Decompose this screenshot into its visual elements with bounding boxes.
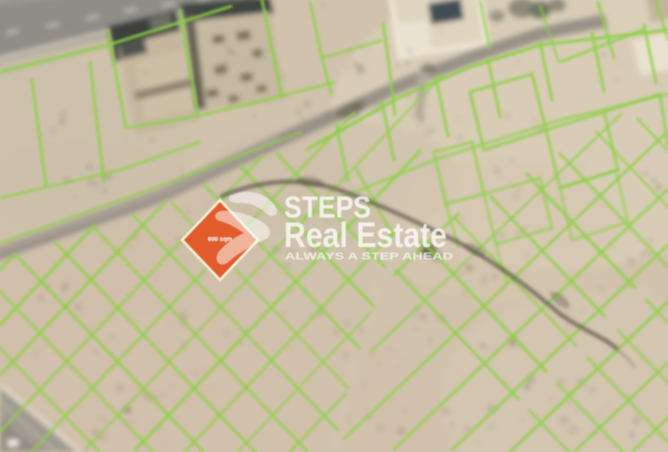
- svg-text:Real Estate: Real Estate: [284, 216, 447, 255]
- svg-text:600 sqm: 600 sqm: [208, 237, 232, 243]
- svg-text:ALWAYS A STEP AHEAD: ALWAYS A STEP AHEAD: [285, 252, 453, 263]
